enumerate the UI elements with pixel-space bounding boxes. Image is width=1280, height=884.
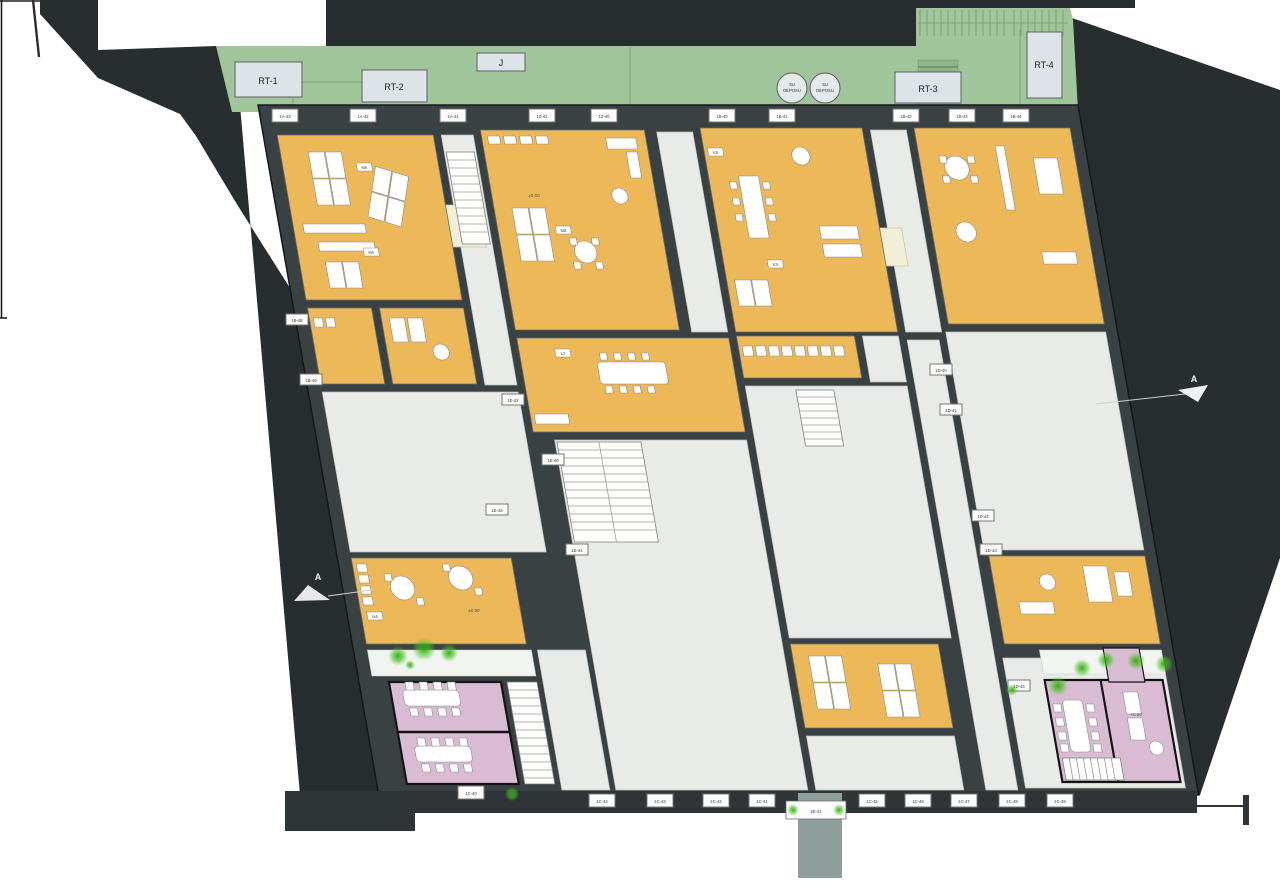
wall-tag: 1D-43 — [985, 548, 997, 553]
window-tag: 1A-42 — [357, 114, 369, 119]
fixture — [807, 346, 819, 356]
site-top-strip — [326, 0, 918, 46]
chair — [627, 353, 635, 360]
wall-tag: 1D-41 — [945, 408, 957, 413]
chair — [942, 176, 950, 183]
window-tag: 1C-46 — [912, 799, 924, 804]
conference-table — [597, 362, 669, 384]
rt2-label: RT-2 — [384, 82, 403, 92]
elevation-mark: ±0.00 — [468, 608, 480, 613]
window-tag: 1B-43 — [956, 114, 968, 119]
window-tag: 1B-44 — [1010, 114, 1022, 119]
chair — [1093, 744, 1102, 752]
rt1-label: RT-1 — [258, 76, 277, 86]
conference-table — [414, 746, 473, 762]
office-southwest — [351, 558, 526, 644]
fixture — [313, 318, 324, 327]
fixture — [742, 346, 754, 356]
south-wall-west-block — [285, 791, 415, 831]
chair — [405, 682, 414, 690]
rt4-label: RT-4 — [1034, 60, 1053, 70]
tree-icon — [1127, 652, 1145, 670]
wall-tag: 1D-40 — [935, 368, 947, 373]
cabinet — [534, 414, 570, 424]
tree-icon — [1006, 684, 1018, 696]
stair-southeast — [1062, 758, 1124, 780]
chair — [1091, 732, 1100, 740]
cabinet — [362, 597, 373, 605]
sofa — [1019, 602, 1055, 614]
cabinet — [519, 136, 532, 144]
cabinet — [356, 564, 367, 572]
window-tag: 1C-43 — [654, 799, 666, 804]
chair — [619, 386, 627, 393]
floor-plan-drawing: RT-1 RT-2 J RT-3 RT-4 SU DEPOSU SU DEPOS… — [0, 0, 1280, 884]
chair — [1055, 718, 1064, 726]
chair — [765, 198, 773, 205]
tree-icon — [1155, 655, 1173, 673]
chair — [732, 198, 740, 205]
corridor-south — [806, 736, 963, 790]
chair — [421, 764, 430, 772]
window-tag: 1C-40 — [465, 791, 477, 796]
wall-tag: 1E-42 — [507, 398, 519, 403]
j-label: J — [499, 58, 504, 68]
chair — [384, 574, 392, 581]
long-table — [303, 224, 367, 233]
chair — [424, 708, 433, 716]
chair — [459, 738, 468, 746]
site-topright-band — [915, 0, 1135, 8]
window-tag: 1Z-40 — [599, 114, 611, 119]
chair — [967, 156, 975, 163]
chair — [613, 353, 621, 360]
chair — [647, 386, 655, 393]
office-north-center-1 — [480, 130, 679, 330]
tree-icon — [412, 637, 436, 661]
chair — [410, 708, 419, 716]
office-southeast-suite — [989, 556, 1160, 644]
window-tag: 1B-41 — [776, 114, 788, 119]
window-tag: 1B-40 — [716, 114, 728, 119]
south-wall-east-tick — [1243, 795, 1249, 825]
chair — [641, 353, 649, 360]
chair — [419, 682, 428, 690]
window-tag: 1C-44 — [596, 799, 608, 804]
chair — [1088, 718, 1097, 726]
fixture — [768, 346, 780, 356]
fixture — [781, 346, 793, 356]
cabinet — [358, 575, 369, 583]
chair — [442, 564, 450, 571]
tank2-line2: DEPOSU — [816, 88, 834, 93]
window-tag: 1C-42 — [710, 799, 722, 804]
section-letter-right: A — [1191, 374, 1198, 384]
tank2-line1: SU — [822, 82, 828, 87]
cabinet — [503, 136, 516, 144]
fixture — [794, 346, 806, 356]
fixture — [820, 346, 832, 356]
chair — [1086, 704, 1095, 712]
chair — [463, 764, 472, 772]
chair — [449, 764, 458, 772]
chair — [939, 156, 947, 163]
entry-plant-icon — [787, 804, 799, 816]
conference-table — [402, 690, 461, 706]
chair — [768, 214, 776, 221]
wall-tag: 1E-40 — [547, 458, 559, 463]
entry-door-tag: 2E-41 — [810, 809, 822, 814]
chair — [416, 598, 424, 605]
chair — [431, 738, 440, 746]
sofa — [822, 244, 862, 257]
office-kitchenette — [736, 336, 861, 378]
fixture — [325, 318, 336, 327]
chair — [970, 176, 978, 183]
chair — [729, 182, 737, 189]
tree-icon — [388, 646, 408, 666]
chair — [447, 682, 456, 690]
chair — [1060, 744, 1069, 752]
chair — [1053, 704, 1062, 712]
floor-plan-sheet: RT-1 RT-2 J RT-3 RT-4 SU DEPOSU SU DEPOS… — [0, 0, 1280, 884]
chair — [735, 214, 743, 221]
window-tag: 1A-43 — [279, 114, 291, 119]
tank1-line2: DEPOSU — [783, 88, 801, 93]
wall-tag: 1B-48 — [291, 318, 303, 323]
tree-icon — [1048, 676, 1068, 696]
chair — [599, 353, 607, 360]
fixture — [833, 346, 845, 356]
window-tag: 1C-45 — [866, 799, 878, 804]
window-tag: 1C-48 — [1006, 799, 1018, 804]
court-west — [322, 392, 546, 552]
sofa — [606, 138, 638, 149]
elevation-mark: +0.50 — [1130, 712, 1142, 717]
chair — [633, 386, 641, 393]
elevation-mark: ±0.00 — [528, 193, 540, 198]
chair — [762, 182, 770, 189]
tree-icon — [1073, 659, 1091, 677]
tree-icon — [505, 787, 519, 801]
chair — [435, 764, 444, 772]
chair — [605, 386, 613, 393]
tree-icon — [405, 660, 415, 670]
tree-icon — [440, 644, 458, 662]
sofa — [819, 226, 859, 239]
tree-icon — [1097, 651, 1115, 669]
chair — [475, 588, 483, 595]
chair — [595, 262, 603, 269]
entry-plant-icon — [833, 804, 845, 816]
window-tag: 1C-41 — [756, 799, 768, 804]
chair — [433, 682, 442, 690]
cabinet — [535, 136, 548, 144]
window-tag: 1A-41 — [447, 114, 459, 119]
stair-main-center — [557, 442, 659, 542]
chair — [573, 262, 581, 269]
tank1-line1: SU — [789, 82, 795, 87]
sofa — [1042, 252, 1078, 264]
chair — [417, 738, 426, 746]
chair — [452, 708, 461, 716]
rt3-label: RT-3 — [918, 84, 937, 94]
court-notch — [862, 336, 906, 382]
wall-tag: 1E-43 — [491, 508, 503, 513]
chair — [445, 738, 454, 746]
chair — [438, 708, 447, 716]
window-tag: 1C-47 — [958, 799, 970, 804]
chair — [591, 238, 599, 245]
wall-tag: 1E-41 — [571, 548, 583, 553]
chair — [1058, 732, 1067, 740]
section-letter-left: A — [315, 572, 322, 582]
window-tag: 1B-42 — [900, 114, 912, 119]
wall-tag: 1B-49 — [305, 378, 317, 383]
chair — [569, 238, 577, 245]
window-tag: 1Z-41 — [537, 114, 549, 119]
window-tag: 1C-49 — [1054, 799, 1066, 804]
fixture — [755, 346, 767, 356]
wall-tag: 1D-42 — [977, 514, 989, 519]
cabinet — [487, 136, 500, 144]
